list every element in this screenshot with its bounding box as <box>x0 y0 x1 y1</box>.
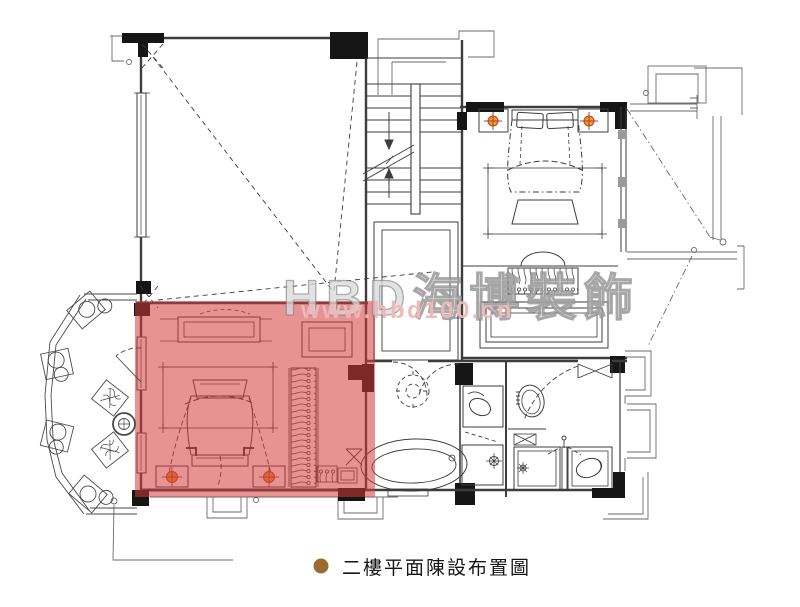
double-door <box>578 364 612 378</box>
plant-stand <box>92 432 129 468</box>
roof-corner-top-right <box>694 68 742 115</box>
bed <box>508 110 583 224</box>
leader-bottom <box>113 505 233 560</box>
column <box>466 102 504 112</box>
roof-over-stairs <box>378 31 494 95</box>
leader-diagonal-1 <box>627 109 710 237</box>
round-table <box>113 413 135 435</box>
cabinet <box>514 434 536 445</box>
shower-stall <box>514 447 560 490</box>
guest-bathroom <box>505 361 627 498</box>
hanging-rail <box>508 268 578 294</box>
door-swing <box>524 366 578 420</box>
caption: 二樓平面陳設布置圖 <box>313 556 531 576</box>
bathtub <box>360 437 468 493</box>
bed-bench <box>512 200 578 224</box>
caption-bullet-icon <box>313 558 329 574</box>
balcony <box>39 285 141 518</box>
shower <box>462 445 503 485</box>
column <box>592 488 625 498</box>
bedroom-2 <box>457 102 627 266</box>
rug <box>483 163 607 239</box>
planter <box>69 472 116 518</box>
bay-window-right-1 <box>625 351 651 396</box>
stair-rail <box>411 84 420 214</box>
bay-window-bottom-1 <box>207 497 247 518</box>
partition <box>562 447 567 490</box>
ottoman <box>515 252 570 266</box>
plant-stand <box>92 380 129 416</box>
column <box>455 363 473 385</box>
caption-text: 二樓平面陳設布置圖 <box>342 553 531 580</box>
wall-edge-right <box>713 116 721 240</box>
window-left <box>137 93 146 237</box>
eave-line-right <box>627 252 737 259</box>
master-bathroom <box>360 361 505 505</box>
void-room <box>122 32 432 308</box>
balcony-rail <box>45 295 84 514</box>
floor-plan <box>0 0 800 607</box>
washbasin <box>515 383 547 420</box>
door-swing <box>465 432 498 442</box>
bay-window-right-2 <box>627 404 656 458</box>
column <box>455 483 475 505</box>
toilet <box>574 455 605 481</box>
stair-direction-arrow <box>385 112 393 198</box>
planter <box>41 348 75 384</box>
column <box>136 281 151 294</box>
toilet-stall <box>463 386 503 427</box>
shower-head <box>517 462 529 474</box>
master-bedroom-highlight <box>135 301 375 497</box>
toilet-stall <box>568 447 612 490</box>
ceiling-lamp <box>396 371 430 411</box>
closet-island <box>480 302 608 348</box>
walk-in-closet <box>462 266 627 373</box>
leader-diagonal-2 <box>648 256 692 346</box>
floor-plan-page: { "watermark": { "brand": "HBD海博裝飾", "ur… <box>0 0 800 607</box>
landing-corridor <box>374 222 458 360</box>
lamp <box>484 112 502 130</box>
column <box>457 112 467 130</box>
lamp <box>580 112 598 130</box>
planter <box>67 285 115 332</box>
column <box>330 32 368 59</box>
toilet <box>467 395 494 419</box>
